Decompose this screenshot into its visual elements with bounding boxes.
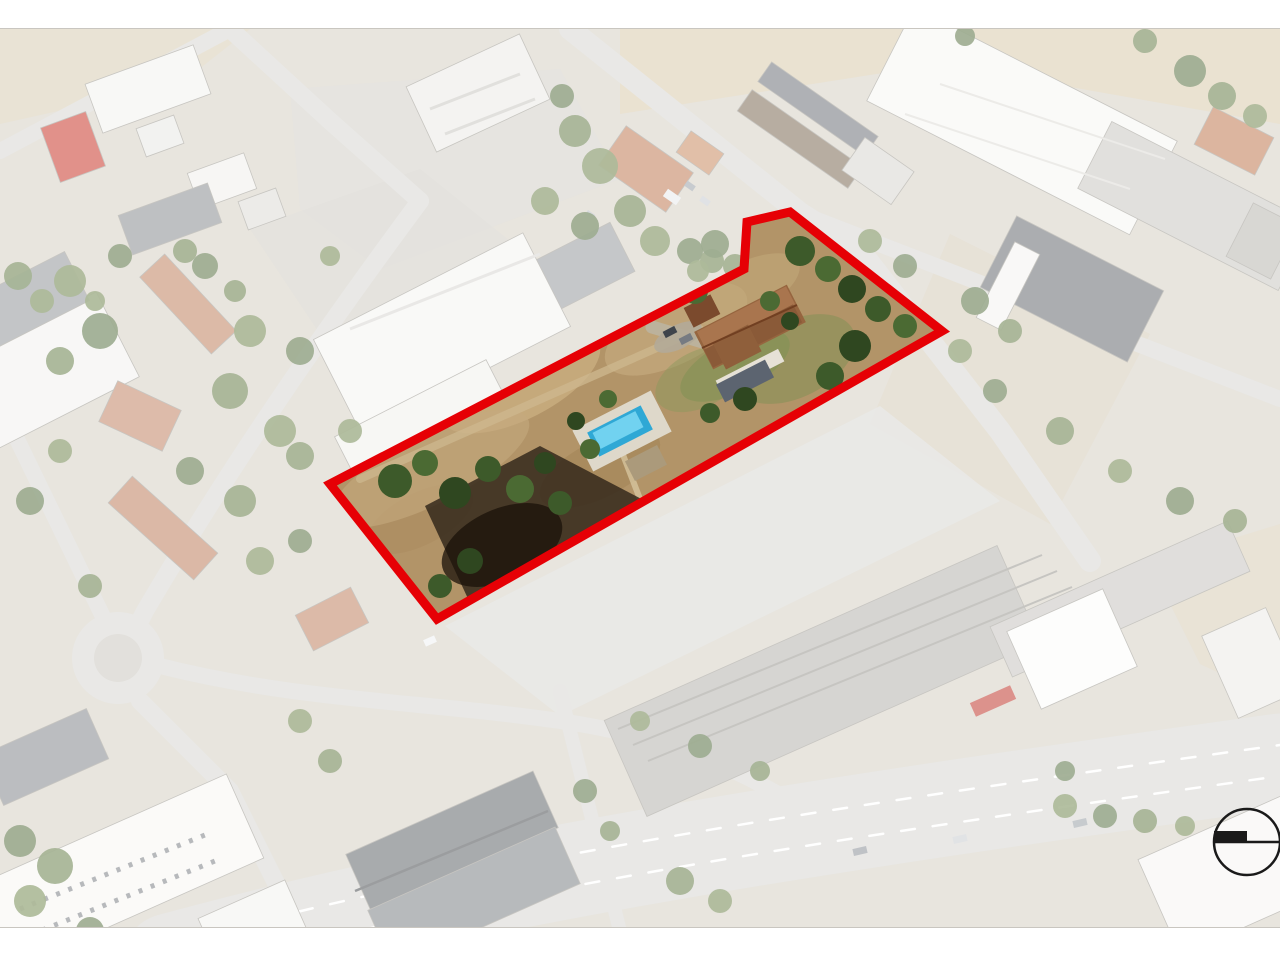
- listing-photo-page: [0, 0, 1280, 960]
- compass-bar: [1214, 831, 1247, 842]
- parcel-tree: [439, 477, 471, 509]
- parcel-tree: [893, 314, 917, 338]
- aerial-photo-map: [0, 29, 1280, 928]
- parcel-tree: [733, 387, 757, 411]
- parcel-tree: [457, 548, 483, 574]
- parcel-tree: [815, 256, 841, 282]
- parcel-tree: [475, 456, 501, 482]
- parcel-tree: [412, 450, 438, 476]
- aerial-photo-frame: [0, 28, 1280, 928]
- parcel-tree: [428, 574, 452, 598]
- parcel-tree: [700, 403, 720, 423]
- parcel-tree: [785, 236, 815, 266]
- parcel-tree: [760, 291, 780, 311]
- parcel-tree: [781, 312, 799, 330]
- parcel-tree: [506, 475, 534, 503]
- parcel-tree: [838, 275, 866, 303]
- parcel-tree: [865, 296, 891, 322]
- parcel-tree: [548, 491, 572, 515]
- parcel-tree: [534, 452, 556, 474]
- parcel-tree: [839, 330, 871, 362]
- parcel-tree: [567, 412, 585, 430]
- parcel-tree: [599, 390, 617, 408]
- parcel-tree: [378, 464, 412, 498]
- parcel-tree: [580, 439, 600, 459]
